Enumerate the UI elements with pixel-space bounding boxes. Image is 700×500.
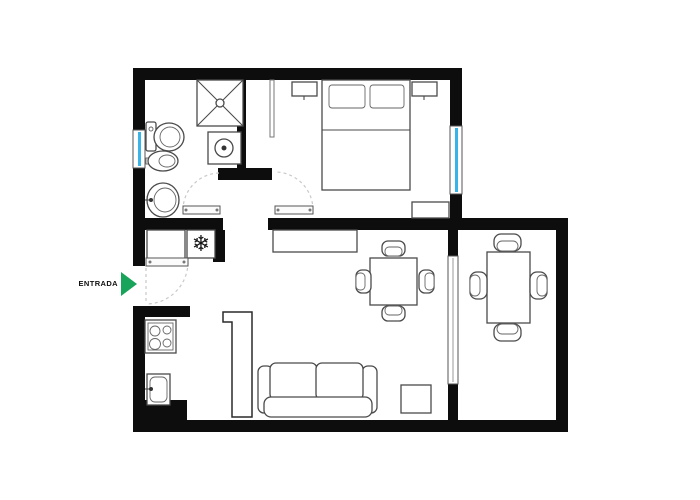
floor-plan-drawing	[0, 0, 700, 500]
terrace-table	[487, 252, 530, 323]
terrace-glass-door	[448, 256, 458, 384]
side-table	[401, 385, 431, 413]
bedroom-thin-partition	[270, 80, 274, 137]
dining-chair-left	[356, 270, 371, 293]
entrance-door	[146, 258, 188, 304]
stove	[145, 320, 176, 353]
toilet	[146, 122, 184, 151]
nightstand-left	[292, 82, 317, 100]
terrace-chair-left	[470, 272, 487, 299]
dining-chair-bottom	[382, 306, 405, 321]
dining-chair-top	[382, 241, 405, 256]
washing-machine	[208, 132, 241, 164]
nightstand-right	[412, 82, 437, 100]
terrace-chair-right	[530, 272, 547, 299]
bedroom-door	[275, 172, 313, 214]
kitchen-peninsula-wall	[223, 312, 252, 417]
bed	[322, 80, 410, 190]
closet-cabinet	[147, 230, 185, 260]
dining-table	[370, 258, 417, 305]
sideboard	[273, 230, 357, 252]
shower	[197, 80, 243, 126]
entrance-label: ENTRADA	[58, 278, 118, 290]
washbasin	[145, 183, 179, 217]
terrace-chair-top	[494, 234, 521, 251]
sofa	[258, 363, 377, 417]
bedroom-bench	[412, 202, 449, 218]
floor-plan: ❄ ENTRADA	[0, 0, 700, 500]
bathroom-window	[133, 130, 145, 168]
entrance-arrow-icon	[121, 272, 137, 296]
dining-chair-right	[419, 270, 434, 293]
bidet	[146, 151, 178, 171]
terrace-chair-bottom	[494, 324, 521, 341]
snowflake-icon: ❄	[187, 229, 215, 258]
bathroom-door	[183, 173, 220, 214]
kitchen-sink	[145, 374, 170, 405]
bedroom-window	[450, 126, 462, 194]
